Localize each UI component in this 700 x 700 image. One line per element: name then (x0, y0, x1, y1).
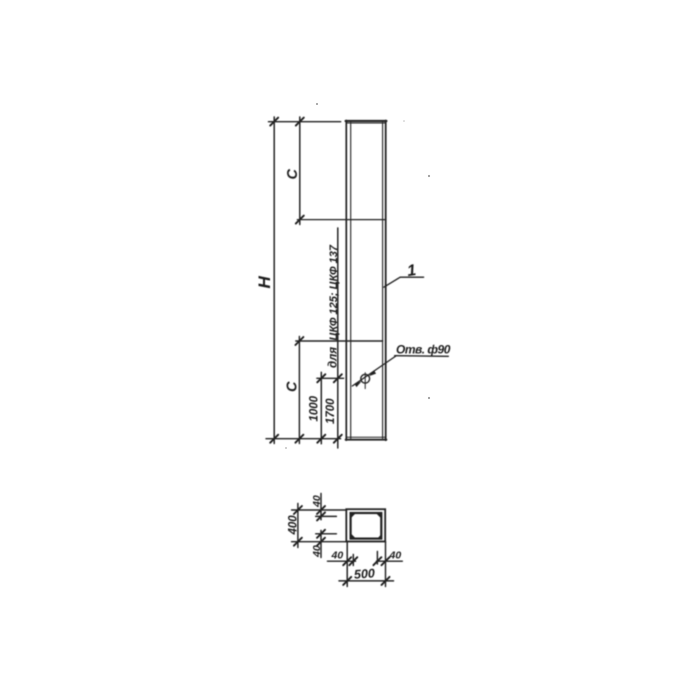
svg-text:40: 40 (389, 550, 402, 562)
svg-text:400: 400 (288, 515, 300, 536)
svg-text:1000: 1000 (309, 395, 321, 421)
svg-text:40: 40 (311, 495, 323, 508)
svg-text:ЦКФ 125; ЦКФ 137: ЦКФ 125; ЦКФ 137 (328, 244, 340, 340)
svg-text:500: 500 (354, 566, 376, 581)
svg-text:1: 1 (406, 262, 417, 280)
svg-text:H: H (255, 276, 274, 289)
svg-text:40: 40 (311, 545, 323, 558)
svg-text:C: C (285, 169, 301, 180)
svg-text:для: для (328, 347, 340, 368)
svg-text:40: 40 (331, 550, 344, 562)
svg-text:C: C (285, 381, 301, 392)
svg-text:Отв. ф90: Отв. ф90 (396, 343, 451, 357)
svg-text:1700: 1700 (325, 398, 337, 424)
